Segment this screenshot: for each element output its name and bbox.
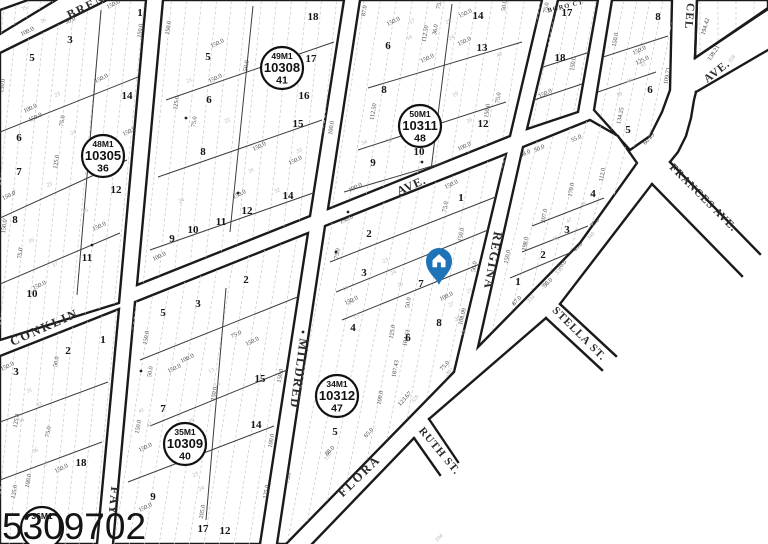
lot-number: 7 xyxy=(16,166,22,178)
block-marker-text: 47 xyxy=(331,403,343,415)
dimension-label: 100.0 xyxy=(327,120,336,135)
lot-number: 8 xyxy=(381,84,387,96)
street-label: STELLA ST. xyxy=(550,305,609,364)
lot-number: 2 xyxy=(540,249,546,261)
map-id-watermark: 5309702 xyxy=(2,506,146,544)
lot-number: 5 xyxy=(332,426,338,438)
lot-number: 3 xyxy=(361,267,367,279)
lot-number: 6 xyxy=(385,40,391,52)
lot-number: 11 xyxy=(82,252,92,264)
road-edge xyxy=(670,92,696,162)
lot-number: 6 xyxy=(16,132,22,144)
lot-number: 1 xyxy=(458,192,464,204)
lot-number: 12 xyxy=(220,525,232,537)
street-label: AVE. xyxy=(702,58,733,86)
block-marker: 35M11030940 xyxy=(164,423,206,465)
lot-number: 8 xyxy=(436,317,442,329)
lot-number: 14 xyxy=(251,419,263,431)
block-marker: 49M11030841 xyxy=(261,47,303,89)
lot-number: 7 xyxy=(418,278,424,290)
lot-number: 10 xyxy=(188,224,200,236)
lot-number: 18 xyxy=(308,11,320,23)
lot-number: 18 xyxy=(555,52,567,64)
block-marker-text: 40 xyxy=(179,451,191,463)
lot-number: 12 xyxy=(111,184,123,196)
structure-dot xyxy=(302,331,305,334)
lot-number: 13 xyxy=(477,42,489,54)
parcel-block xyxy=(0,0,146,340)
structure-dot xyxy=(347,211,350,214)
lot-number: 1 xyxy=(100,334,106,346)
lot-number: 5 xyxy=(29,52,35,64)
lot-number: 3 xyxy=(195,298,201,310)
street-label: CEL xyxy=(682,2,696,30)
dimension-label: 50.0 xyxy=(242,60,250,72)
block-marker: 50M11031148 xyxy=(399,105,441,147)
structure-dot xyxy=(140,370,143,373)
faint-lot-number: 29 xyxy=(460,329,468,337)
map-generated-layer: 7536232425261617212231323324343517162524… xyxy=(0,0,768,544)
lot-number: 1 xyxy=(137,7,143,19)
structure-dot xyxy=(185,117,188,120)
dimension-label: 75.0 xyxy=(494,92,502,104)
lot-number: 12 xyxy=(478,118,490,130)
lot-number: 5 xyxy=(205,51,211,63)
lot-number: 2 xyxy=(366,228,372,240)
block-marker: 34M11031247 xyxy=(316,375,358,417)
block-marker: 48M11030536 xyxy=(82,135,124,177)
block-marker-text: 36 xyxy=(97,163,109,175)
street-label: FRANCES AVE. xyxy=(667,162,740,235)
lot-number: 17 xyxy=(198,523,210,535)
lot-number: 12 xyxy=(242,205,254,217)
lot-number: 5 xyxy=(160,307,166,319)
lot-number: 2 xyxy=(243,274,249,286)
lot-number: 8 xyxy=(200,146,206,158)
lot-number: 2 xyxy=(65,345,71,357)
lot-number: 7 xyxy=(160,403,166,415)
dimension-label: 75.0 xyxy=(190,116,198,128)
block-marker-text: 10305 xyxy=(85,148,121,163)
block-marker-text: 41 xyxy=(276,75,288,87)
lot-number: 6 xyxy=(405,332,411,344)
tax-map-canvas[interactable]: 7536232425261617212231323324343517162524… xyxy=(0,0,768,544)
lot-number: 8 xyxy=(12,214,18,226)
lot-number: 3 xyxy=(13,366,19,378)
lot-number: 15 xyxy=(255,373,267,385)
dimension-label: 75.0 xyxy=(58,115,66,127)
structure-dot xyxy=(91,244,94,247)
block-marker-text: 48 xyxy=(414,133,426,145)
parcel-block xyxy=(137,0,344,285)
lot-number: 14 xyxy=(473,10,485,22)
lot-number: 9 xyxy=(150,491,156,503)
lot-number: 17 xyxy=(306,53,318,65)
structure-dot xyxy=(421,161,424,164)
lot-number: 5 xyxy=(625,124,631,136)
lot-number: 14 xyxy=(122,90,134,102)
lot-number: 3 xyxy=(564,224,570,236)
faint-lot-number: 104 xyxy=(434,533,444,543)
lot-number: 4 xyxy=(350,322,356,334)
lot-number: 9 xyxy=(169,233,175,245)
lot-number: 18 xyxy=(76,457,88,469)
lot-number: 4 xyxy=(590,188,596,200)
lot-number: 3 xyxy=(67,34,73,46)
block-marker-text: 10311 xyxy=(402,118,437,133)
lot-number: 9 xyxy=(370,157,376,169)
faint-lot-number: 36 xyxy=(40,17,48,25)
block-marker-text: 10308 xyxy=(264,60,300,75)
dimension-label: 125.0 xyxy=(262,484,271,499)
block-marker-text: 10312 xyxy=(319,388,355,403)
lot-number: 6 xyxy=(647,84,653,96)
lot-number: 1 xyxy=(515,276,521,288)
block-marker-text: 10309 xyxy=(167,436,203,451)
lot-number: 10 xyxy=(27,288,39,300)
lot-number: 14 xyxy=(283,190,295,202)
lot-number: 11 xyxy=(216,216,226,228)
lot-number: 16 xyxy=(299,90,311,102)
map-view: 7536232425261617212231323324343517162524… xyxy=(0,0,768,544)
lot-number: 8 xyxy=(655,11,661,23)
lot-number: 6 xyxy=(206,94,212,106)
lot-number: 15 xyxy=(293,118,305,130)
